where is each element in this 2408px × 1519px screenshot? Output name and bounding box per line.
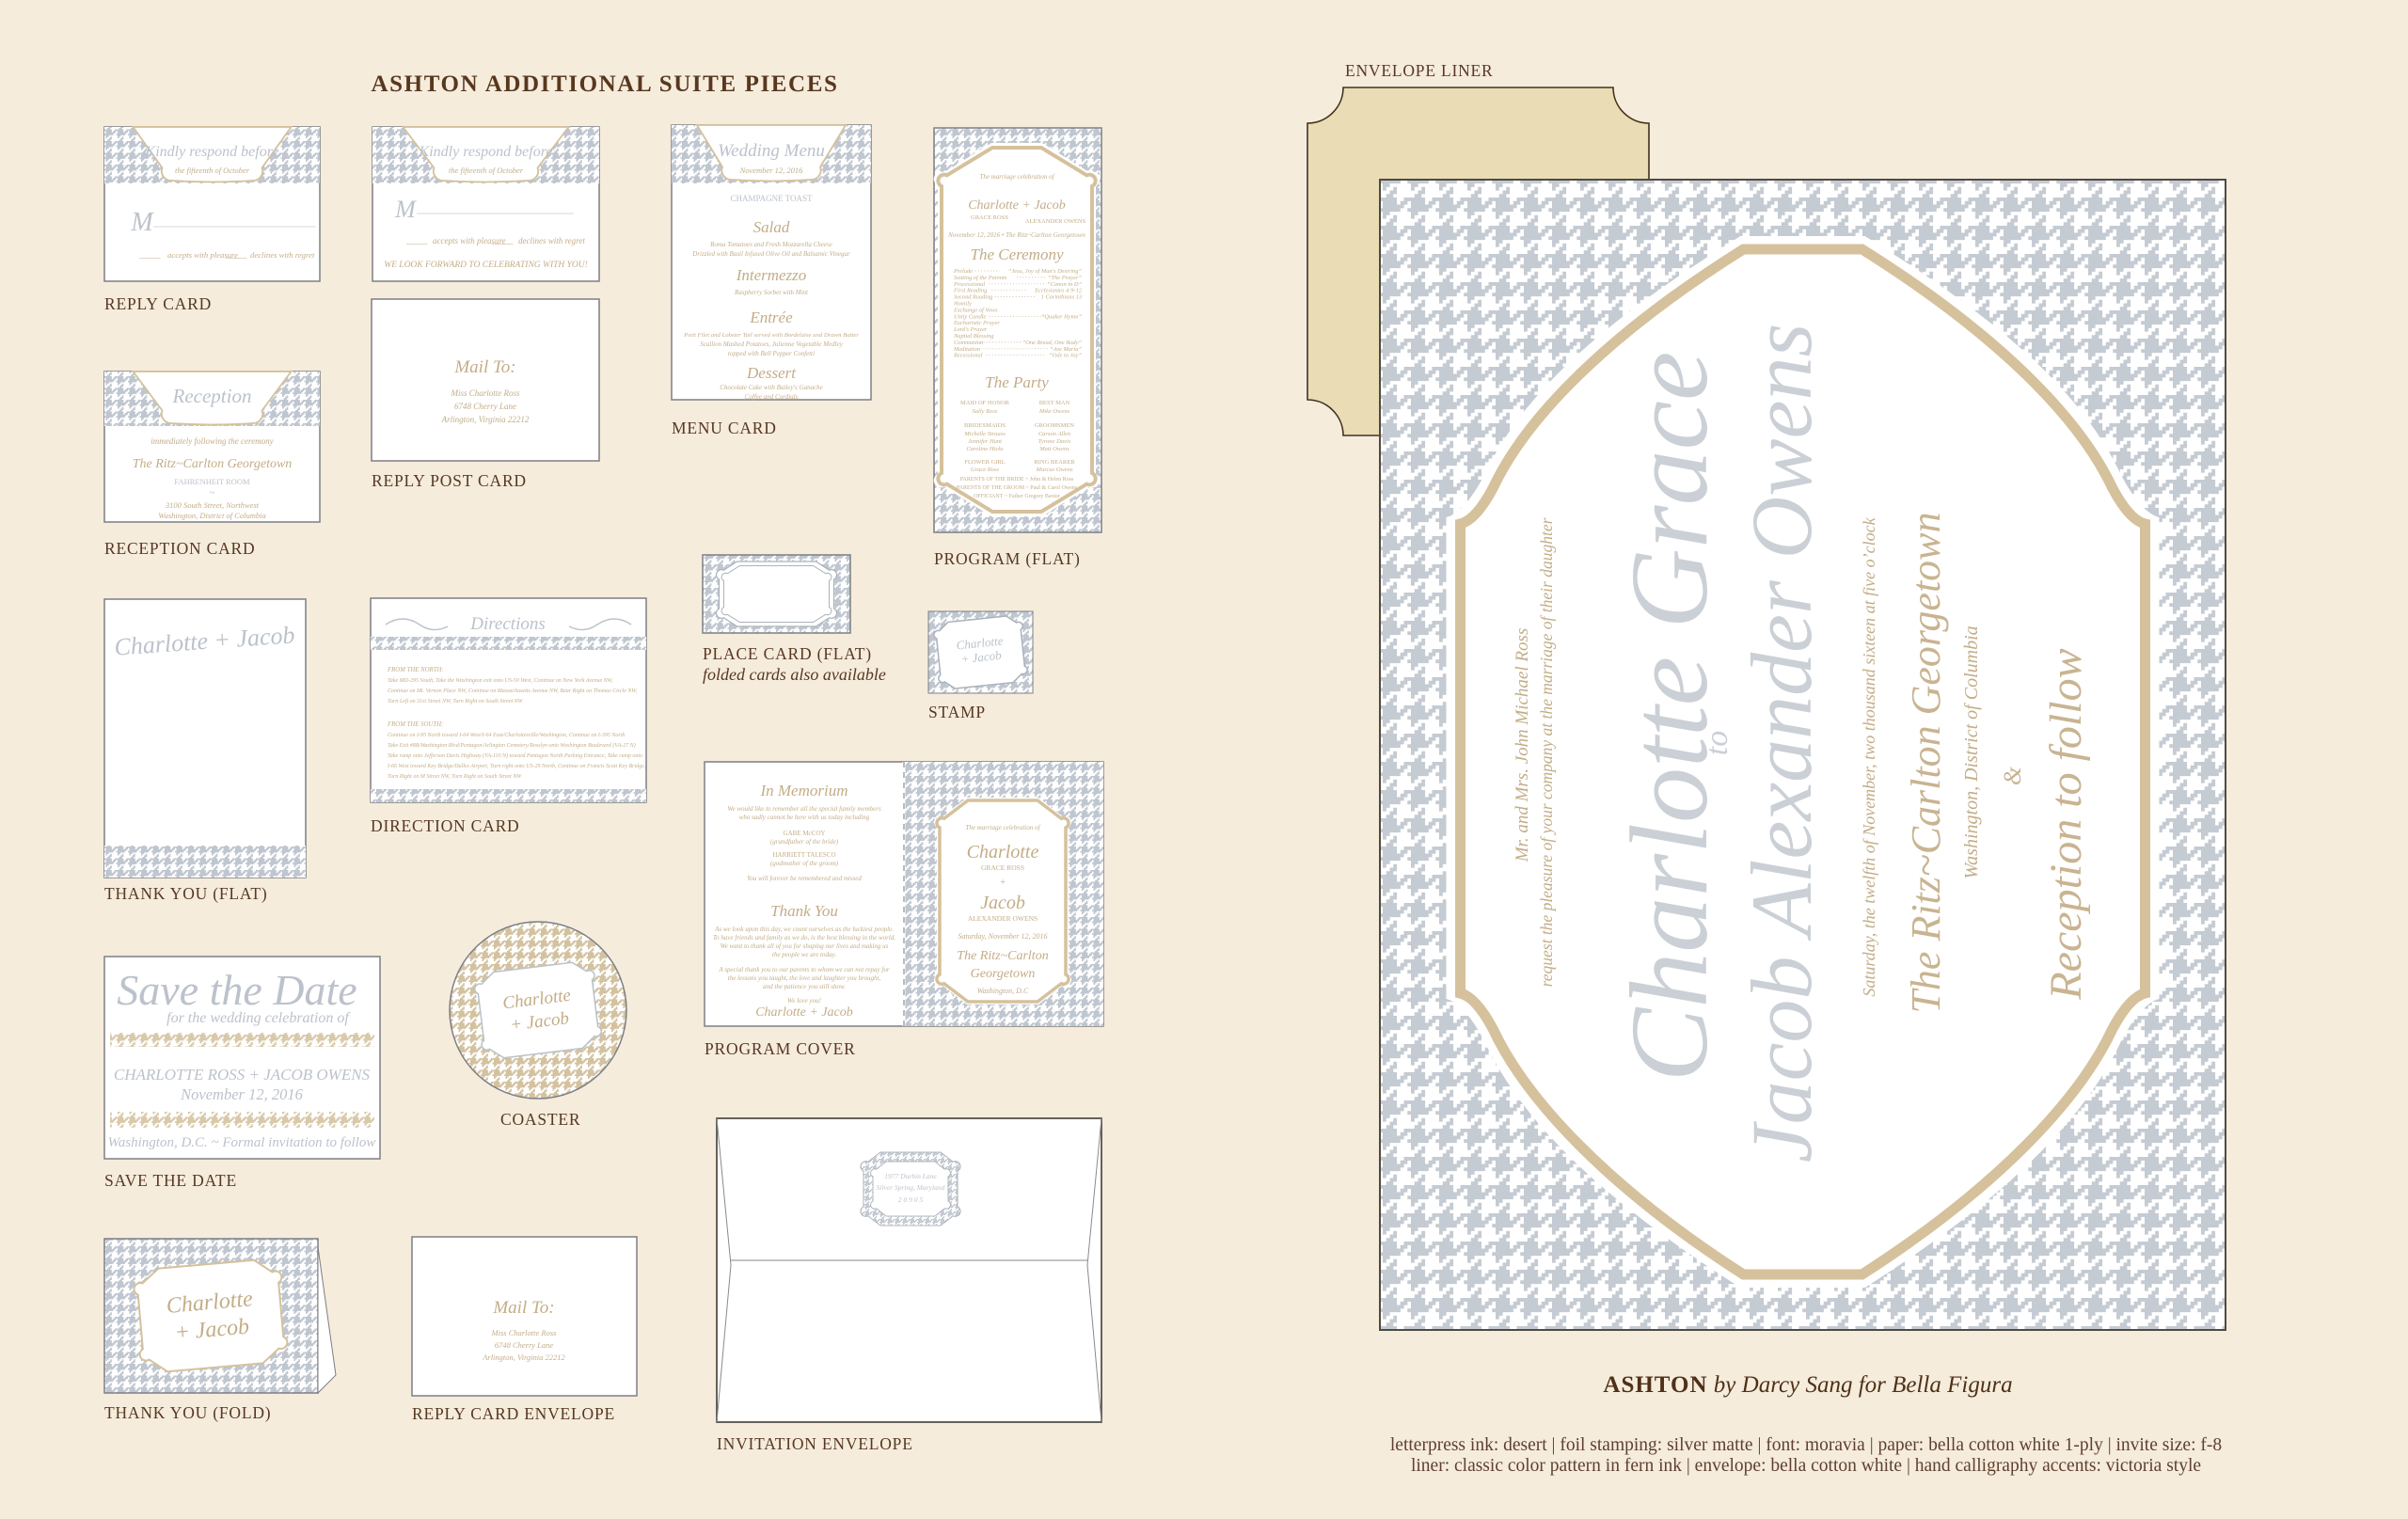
svg-text:Miss Charlotte Ross: Miss Charlotte Ross: [491, 1328, 558, 1337]
svg-text:COASTER: COASTER: [500, 1110, 580, 1129]
svg-text:The marriage celebration of: The marriage celebration of: [979, 173, 1054, 181]
svg-text:Arlington, Virginia 22212: Arlington, Virginia 22212: [482, 1353, 565, 1362]
svg-text:_____: _____: [405, 236, 428, 245]
svg-text:In Memorium: In Memorium: [759, 782, 848, 799]
svg-text:Carson Allen: Carson Allen: [1038, 431, 1070, 437]
svg-text:1 Corinthians 13: 1 Corinthians 13: [1041, 294, 1082, 301]
svg-text:Save the Date: Save the Date: [117, 966, 356, 1014]
svg-text:SAVE THE DATE: SAVE THE DATE: [104, 1171, 237, 1190]
svg-text:Grace Ross: Grace Ross: [971, 467, 1000, 473]
svg-text:_____: _____: [225, 250, 247, 260]
svg-text:PARENTS OF THE BRIDE ~ John &: PARENTS OF THE BRIDE ~ John & Helen Ross: [960, 477, 1074, 483]
svg-text:THANK YOU (FLAT): THANK YOU (FLAT): [104, 884, 268, 903]
svg-text:OFFICIANT ~ Father Gregory Bax: OFFICIANT ~ Father Gregory Baxter: [974, 494, 1060, 499]
svg-text:CHAMPAGNE TOAST: CHAMPAGNE TOAST: [730, 194, 813, 203]
svg-text:Miss Charlotte Ross: Miss Charlotte Ross: [450, 388, 520, 398]
svg-text:~: ~: [210, 487, 215, 498]
svg-text:folded cards also available: folded cards also available: [703, 665, 886, 684]
svg-text:ALEXANDER OWENS: ALEXANDER OWENS: [1025, 218, 1086, 225]
svg-text:The Party: The Party: [985, 373, 1049, 391]
svg-text:declines with regret: declines with regret: [518, 236, 585, 245]
svg-text:Dessert: Dessert: [746, 364, 797, 382]
svg-text:REPLY CARD ENVELOPE: REPLY CARD ENVELOPE: [412, 1404, 615, 1423]
svg-text:GRACE ROSS: GRACE ROSS: [971, 214, 1008, 221]
svg-text:Marcus Owens: Marcus Owens: [1036, 467, 1073, 473]
svg-text:Arlington, Virginia 22212: Arlington, Virginia 22212: [441, 415, 530, 424]
svg-text:Directions: Directions: [469, 614, 546, 634]
svg-text:PLACE CARD (FLAT): PLACE CARD (FLAT): [703, 644, 872, 663]
svg-text:GROOMSMEN: GROOMSMEN: [1035, 422, 1075, 429]
svg-text:liner: classic color pattern i: liner: classic color pattern in fern ink…: [1411, 1456, 2201, 1476]
svg-text:_____: _____: [491, 236, 514, 245]
svg-text:Continue on Mt. Vernon Place N: Continue on Mt. Vernon Place NW, Continu…: [388, 688, 638, 694]
svg-text:Washington, District of Columb: Washington, District of Columbia: [158, 511, 265, 520]
svg-text:CHARLOTTE ROSS + JACOB OWENS: CHARLOTTE ROSS + JACOB OWENS: [114, 1066, 371, 1084]
svg-text:STAMP: STAMP: [928, 703, 986, 721]
svg-text:ALEXANDER OWENS: ALEXANDER OWENS: [968, 914, 1038, 923]
svg-text:Kindly respond before: Kindly respond before: [419, 144, 553, 160]
svg-text:INVITATION ENVELOPE: INVITATION ENVELOPE: [717, 1434, 913, 1453]
svg-text:To have friends and family as: To have friends and family as we do, is …: [713, 934, 895, 941]
svg-text:the lessons you taught, the lo: the lessons you taught, the love and lau…: [728, 974, 881, 982]
svg-text:Charlotte + Jacob: Charlotte + Jacob: [968, 198, 1066, 213]
svg-text:RECEPTION CARD: RECEPTION CARD: [104, 539, 255, 558]
svg-text:2 0 9 0 5: 2 0 9 0 5: [898, 1195, 924, 1204]
svg-text:The Ritz~Carlton Georgetown: The Ritz~Carlton Georgetown: [133, 457, 293, 471]
svg-text:Reception: Reception: [172, 385, 252, 407]
svg-text:Jacob Alexander Owens: Jacob Alexander Owens: [1734, 324, 1830, 1163]
svg-text:Jacob: Jacob: [980, 893, 1025, 913]
svg-text:Entrée: Entrée: [749, 309, 793, 326]
svg-text:The Ceremony: The Ceremony: [971, 245, 1064, 263]
svg-text:Turn Left on 31st Street NW,: Turn Left on 31st Street NW, Turn Right …: [388, 698, 524, 704]
svg-text:PROGRAM (FLAT): PROGRAM (FLAT): [934, 549, 1081, 568]
svg-text:Caroline Hicks: Caroline Hicks: [966, 446, 1004, 452]
svg-text:Georgetown: Georgetown: [971, 967, 1036, 981]
svg-text:WE LOOK FORWARD TO CELEBRATING: WE LOOK FORWARD TO CELEBRATING WITH YOU!: [384, 261, 588, 270]
svg-text:Tyrone Davis: Tyrone Davis: [1038, 438, 1071, 445]
svg-text:M: M: [130, 208, 154, 237]
svg-text:GABE McCOY: GABE McCOY: [784, 830, 826, 837]
svg-text:letterpress ink: desert | fo: letterpress ink: desert | foil stamping:…: [1390, 1435, 2222, 1455]
svg-text:“Quaker Hymn”: “Quaker Hymn”: [1041, 313, 1083, 320]
svg-text:Wedding Menu: Wedding Menu: [718, 141, 825, 161]
svg-text:HARRIETT TALESCO: HARRIETT TALESCO: [772, 851, 835, 859]
svg-text:Washington, D.C: Washington, D.C: [977, 987, 1029, 995]
svg-text:Mr. and Mrs. John Michael Ross: Mr. and Mrs. John Michael Ross: [1513, 628, 1532, 863]
svg-text:declines with regret: declines with regret: [250, 250, 315, 260]
svg-text:Mail To:: Mail To:: [453, 357, 515, 377]
svg-text:Intermezzo: Intermezzo: [736, 266, 807, 284]
svg-text:REPLY CARD: REPLY CARD: [104, 294, 212, 313]
svg-text:The marriage celebration of: The marriage celebration of: [965, 824, 1040, 831]
svg-text:3100 South Street, Northwest: 3100 South Street, Northwest: [165, 500, 260, 510]
svg-text:FAHRENHEIT ROOM: FAHRENHEIT ROOM: [174, 477, 250, 486]
svg-text:Jennifer Hunt: Jennifer Hunt: [968, 438, 1002, 445]
svg-text:Chocolate Cake with Bailey's G: Chocolate Cake with Bailey's Ganache: [720, 384, 823, 391]
svg-text:FROM THE SOUTH:: FROM THE SOUTH:: [387, 721, 443, 728]
svg-text:ENVELOPE LINER: ENVELOPE LINER: [1345, 61, 1494, 80]
svg-text:November 12, 2016 • The Ritz~C: November 12, 2016 • The Ritz~Carlton Geo…: [947, 231, 1085, 239]
svg-text:DIRECTION CARD: DIRECTION CARD: [371, 816, 520, 835]
svg-text:Saturday, the twelfth of Novem: Saturday, the twelfth of November, two t…: [1860, 516, 1878, 996]
svg-text:Drizzled with Basil Infused Ol: Drizzled with Basil Infused Olive Oil an…: [691, 250, 850, 258]
svg-text:for the wedding celebration of: for the wedding celebration of: [166, 1010, 351, 1026]
svg-text:Silver Spring, Maryland: Silver Spring, Maryland: [877, 1183, 945, 1192]
svg-text:RING BEARER: RING BEARER: [1034, 459, 1075, 466]
svg-text:We would like to remember all: We would like to remember all the specia…: [727, 805, 881, 813]
svg-text:Matt Owens: Matt Owens: [1038, 446, 1069, 452]
svg-text:FLOWER GIRL: FLOWER GIRL: [964, 459, 1006, 466]
svg-text:topped with Bell Pepper Confet: topped with Bell Pepper Confetti: [728, 350, 815, 357]
svg-text:6748 Cherry Lane: 6748 Cherry Lane: [495, 1340, 554, 1350]
svg-text:Saturday, November 12, 2016: Saturday, November 12, 2016: [958, 932, 1047, 941]
svg-text:Michelle Strauss: Michelle Strauss: [963, 431, 1006, 437]
svg-text:The Ritz~Carlton: The Ritz~Carlton: [957, 949, 1048, 963]
svg-text:Take MD-295 South, Take the Wa: Take MD-295 South, Take the Washington e…: [388, 678, 613, 684]
svg-text:“Ode to Joy”: “Ode to Joy”: [1049, 353, 1082, 359]
svg-text:PROGRAM COVER: PROGRAM COVER: [705, 1039, 856, 1058]
svg-text:Coffee and Cordials: Coffee and Cordials: [745, 393, 799, 401]
svg-text:&: &: [1999, 766, 2026, 785]
svg-text:November 12, 2016: November 12, 2016: [739, 166, 804, 175]
svg-text:GRACE ROSS: GRACE ROSS: [981, 863, 1024, 872]
svg-text:Reception to follow: Reception to follow: [2041, 648, 2091, 1000]
svg-text:ASHTON ADDITIONAL SUITE PIECES: ASHTON ADDITIONAL SUITE PIECES: [372, 71, 839, 97]
svg-text:MENU CARD: MENU CARD: [672, 419, 777, 437]
svg-text:(godmother of the groom): (godmother of the groom): [770, 860, 839, 867]
svg-text:Salad: Salad: [753, 218, 790, 236]
svg-text:The Ritz~Carlton Georgetown: The Ritz~Carlton Georgetown: [1903, 512, 1949, 1013]
svg-text:A special thank you to our par: A special thank you to our parents to wh…: [718, 966, 889, 973]
svg-text:BRIDESMAIDS: BRIDESMAIDS: [964, 422, 1006, 429]
svg-text:I-66 West toward Key Bridge/Du: I-66 West toward Key Bridge/Dulles Airpo…: [387, 764, 646, 769]
svg-text:+: +: [1000, 878, 1006, 888]
svg-text:Continue on I-95 North toward: Continue on I-95 North toward I-64 West/…: [388, 732, 625, 738]
svg-text:Petit Filet and Lobster Tail s: Petit Filet and Lobster Tail served with…: [683, 332, 859, 339]
svg-text:to: to: [1700, 731, 1735, 755]
svg-text:Take Exit #8B/Washington Blvd/: Take Exit #8B/Washington Blvd/Pentagon/A…: [388, 742, 636, 749]
svg-text:PARENTS OF THE GROOM ~ Paul &: PARENTS OF THE GROOM ~ Paul & Carol Owen…: [957, 485, 1078, 491]
svg-text:who sadly cannot be here with: who sadly cannot be here with us today i…: [739, 814, 870, 821]
svg-text:ASHTON by Darcy Sang for Bella: ASHTON by Darcy Sang for Bella Figura: [1603, 1372, 2012, 1398]
svg-text:request the pleasure of your c: request the pleasure of your company at …: [1537, 517, 1556, 987]
svg-text:You will forever be remembered: You will forever be remembered and misse…: [747, 875, 862, 882]
svg-text:Charlotte + Jacob: Charlotte + Jacob: [755, 1005, 853, 1020]
svg-text:the fifteenth of October: the fifteenth of October: [175, 166, 250, 175]
svg-text:Recessional: Recessional: [953, 353, 983, 359]
svg-text:FROM THE NORTH:: FROM THE NORTH:: [387, 667, 444, 673]
svg-text:the people we are today.: the people we are today.: [772, 951, 836, 958]
svg-text:6748 Cherry Lane: 6748 Cherry Lane: [454, 402, 516, 411]
svg-text:_____: _____: [138, 250, 161, 260]
svg-text:Mike Owens: Mike Owens: [1038, 408, 1070, 415]
svg-text:Sally Ross: Sally Ross: [973, 408, 998, 415]
svg-text:BEST MAN: BEST MAN: [1039, 400, 1070, 406]
svg-text:and the patience you still sho: and the patience you still show.: [763, 983, 846, 990]
svg-text:As we look upon this day, we c: As we look upon this day, we count ourse…: [714, 926, 894, 933]
svg-text:Mail To:: Mail To:: [492, 1298, 554, 1318]
svg-text:We want to thank all of you fo: We want to thank all of you for shaping …: [721, 942, 889, 950]
svg-text:M: M: [394, 196, 417, 223]
svg-text:Take ramp onto Jefferson Davis: Take ramp onto Jefferson Davis Highway (…: [388, 752, 642, 759]
svg-text:November 12, 2016: November 12, 2016: [180, 1085, 303, 1103]
svg-text:Charlotte: Charlotte: [967, 842, 1039, 862]
svg-text:Washington, District of Columb: Washington, District of Columbia: [1961, 625, 1982, 878]
svg-text:Roma Tomatoes and Fresh Mozzar: Roma Tomatoes and Fresh Mozzarella Chees…: [709, 241, 832, 248]
svg-text:(grandfather of the bride): (grandfather of the bride): [770, 838, 839, 846]
svg-text:THANK YOU (FOLD): THANK YOU (FOLD): [104, 1403, 271, 1422]
svg-text:We love you!: We love you!: [787, 997, 822, 1005]
svg-text:Kindly respond before: Kindly respond before: [145, 144, 279, 160]
svg-text:the fifteenth of October: the fifteenth of October: [449, 166, 524, 175]
svg-text:Scallion Mashed Potatoes, Juli: Scallion Mashed Potatoes, Julienne Veget…: [700, 340, 844, 348]
svg-text:immediately following the cere: immediately following the ceremony: [150, 436, 273, 446]
svg-text:1977 Durbin Lane: 1977 Durbin Lane: [884, 1172, 937, 1180]
svg-text:Washington, D.C. ~ Formal invi: Washington, D.C. ~ Formal invitation to …: [108, 1135, 376, 1150]
svg-text:Thank You: Thank You: [770, 902, 838, 920]
svg-text:Raspberry Sorbet with Mint: Raspberry Sorbet with Mint: [734, 289, 809, 296]
svg-text:Turn Right on M Street NW, Tur: Turn Right on M Street NW, Turn Right on…: [388, 774, 522, 780]
svg-text:REPLY POST CARD: REPLY POST CARD: [372, 471, 527, 490]
svg-text:Charlotte Grace: Charlotte Grace: [1608, 352, 1731, 1083]
svg-text:MAID OF HONOR: MAID OF HONOR: [960, 400, 1010, 406]
